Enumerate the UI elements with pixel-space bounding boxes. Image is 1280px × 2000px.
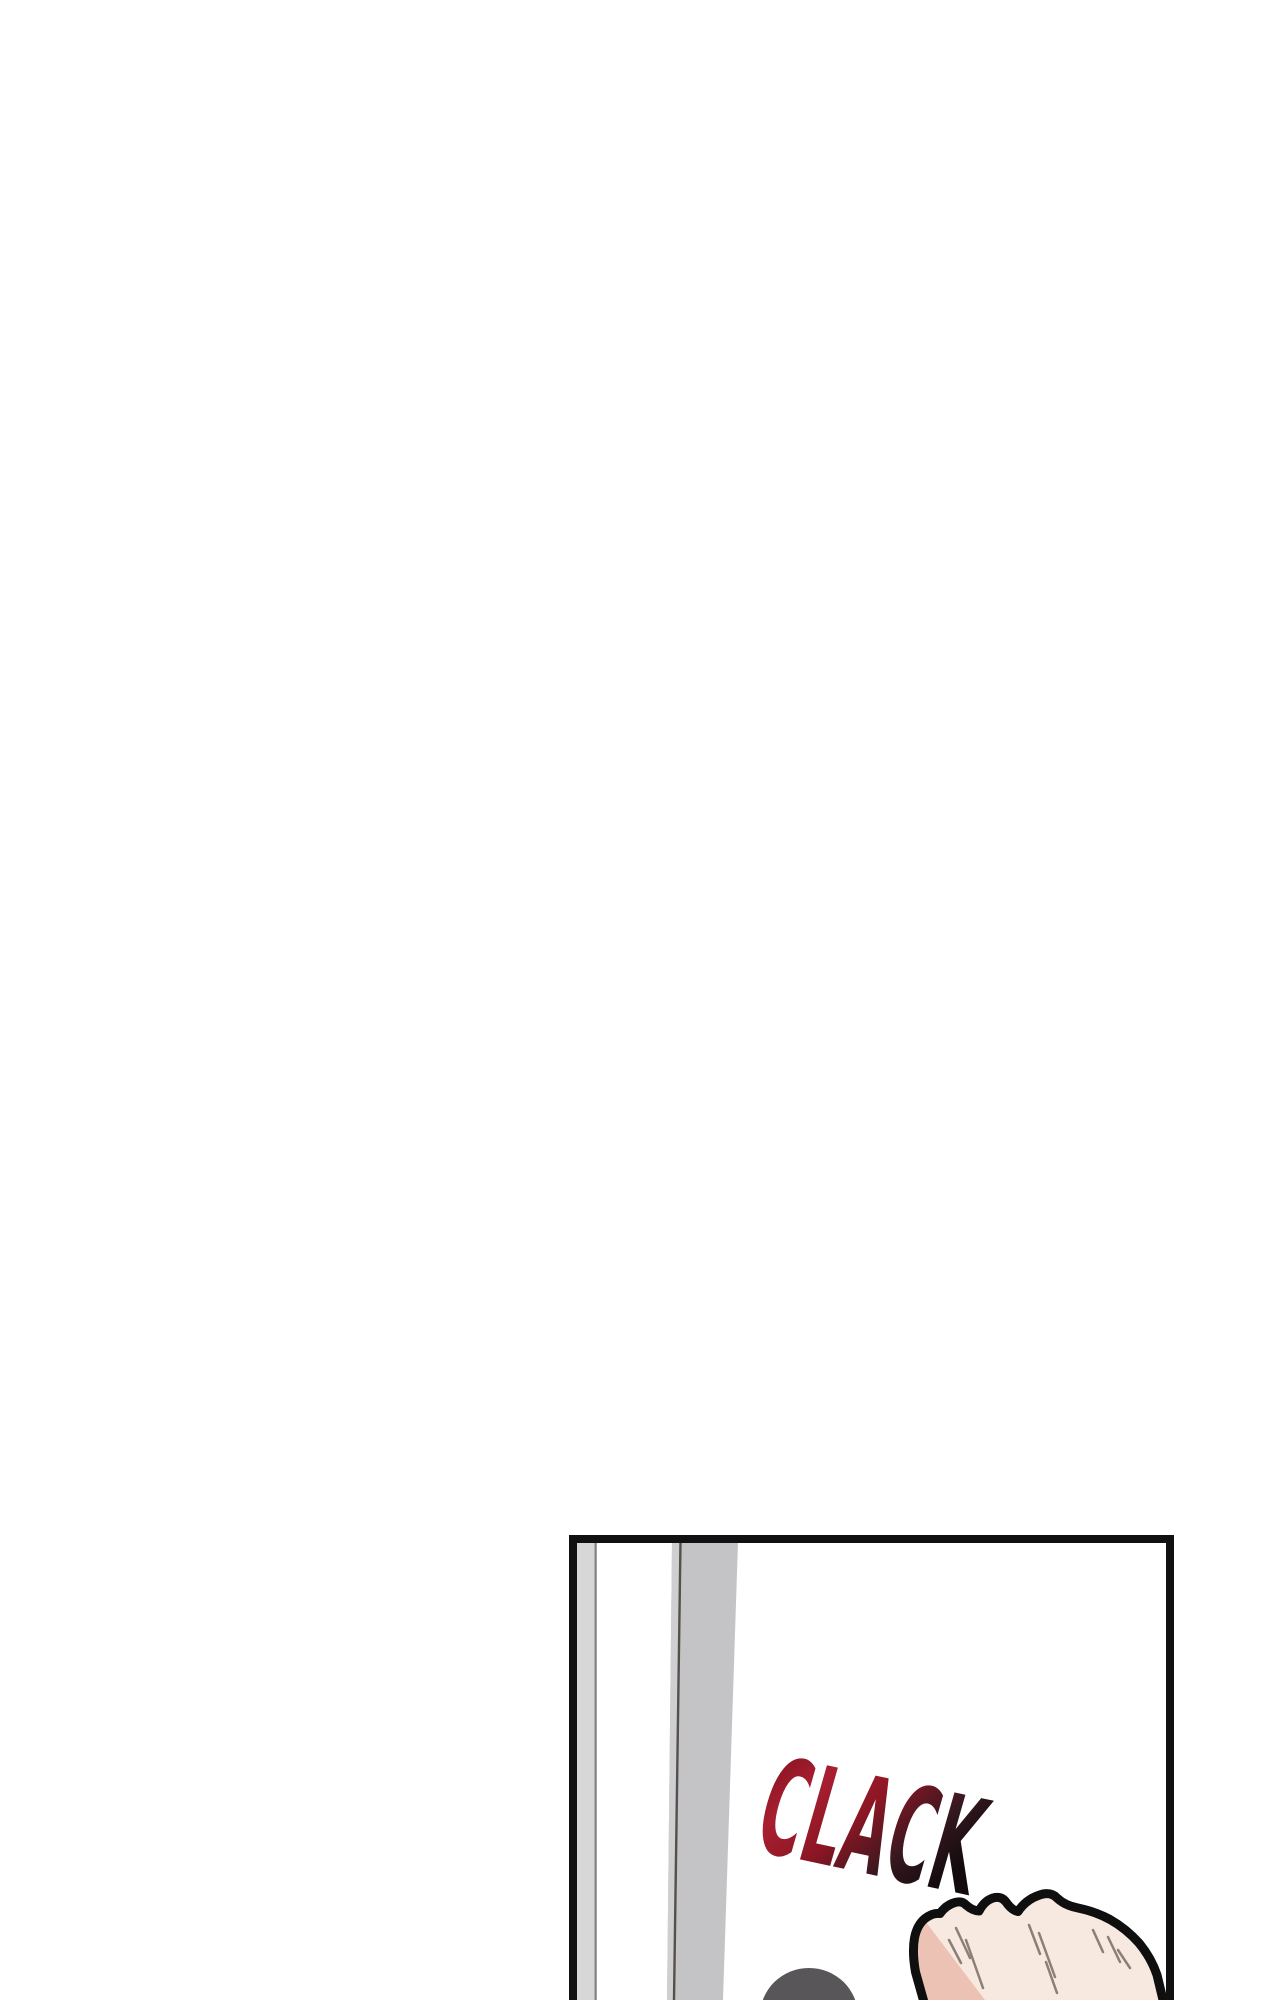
head-silhouette	[760, 1968, 858, 2000]
door-frame-bar	[577, 1542, 597, 2000]
sfx-clack: CLACK	[742, 1729, 1004, 1927]
comic-panel-art: CLACK	[0, 0, 1280, 2000]
webtoon-page: CLACK	[0, 0, 1280, 2000]
sfx-clack-text: CLACK	[742, 1729, 1004, 1927]
